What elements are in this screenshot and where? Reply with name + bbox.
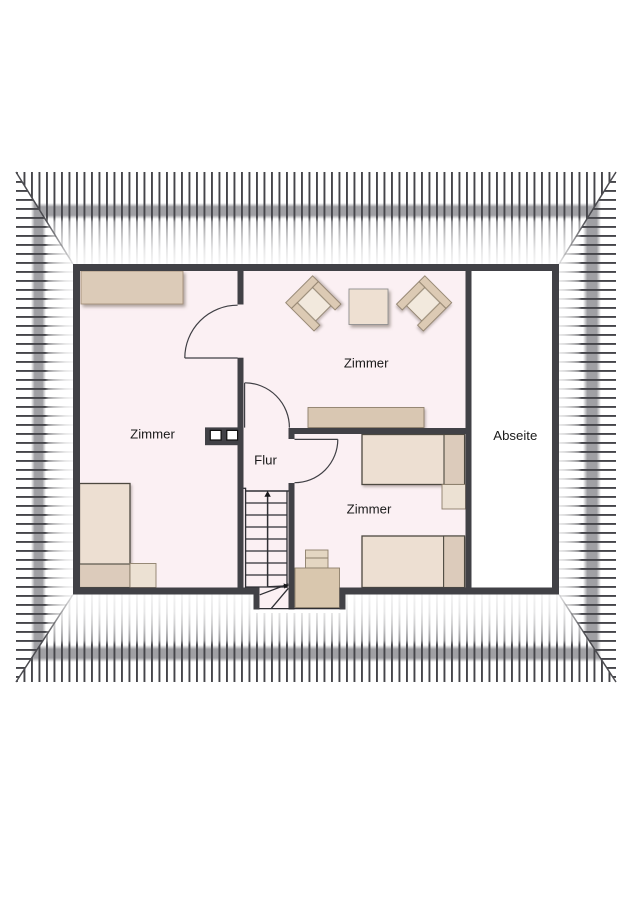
svg-text:Zimmer: Zimmer xyxy=(130,427,175,442)
svg-text:Zimmer: Zimmer xyxy=(347,502,392,517)
svg-text:Zimmer: Zimmer xyxy=(344,356,389,371)
svg-text:Flur: Flur xyxy=(254,453,277,468)
svg-text:Abseite: Abseite xyxy=(493,428,537,443)
